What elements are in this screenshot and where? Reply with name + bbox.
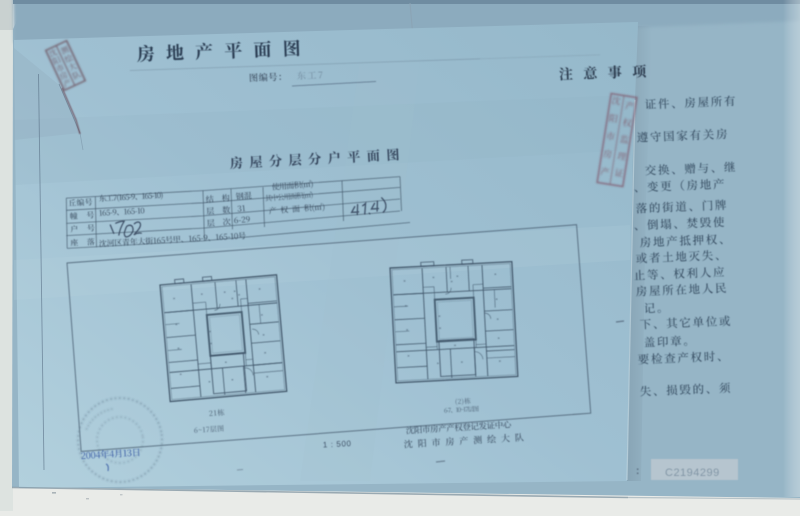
svg-text:1 : 500: 1 : 500 — [323, 439, 352, 449]
svg-text:C2194299: C2194299 — [665, 467, 720, 479]
svg-text::: : — [636, 466, 639, 477]
